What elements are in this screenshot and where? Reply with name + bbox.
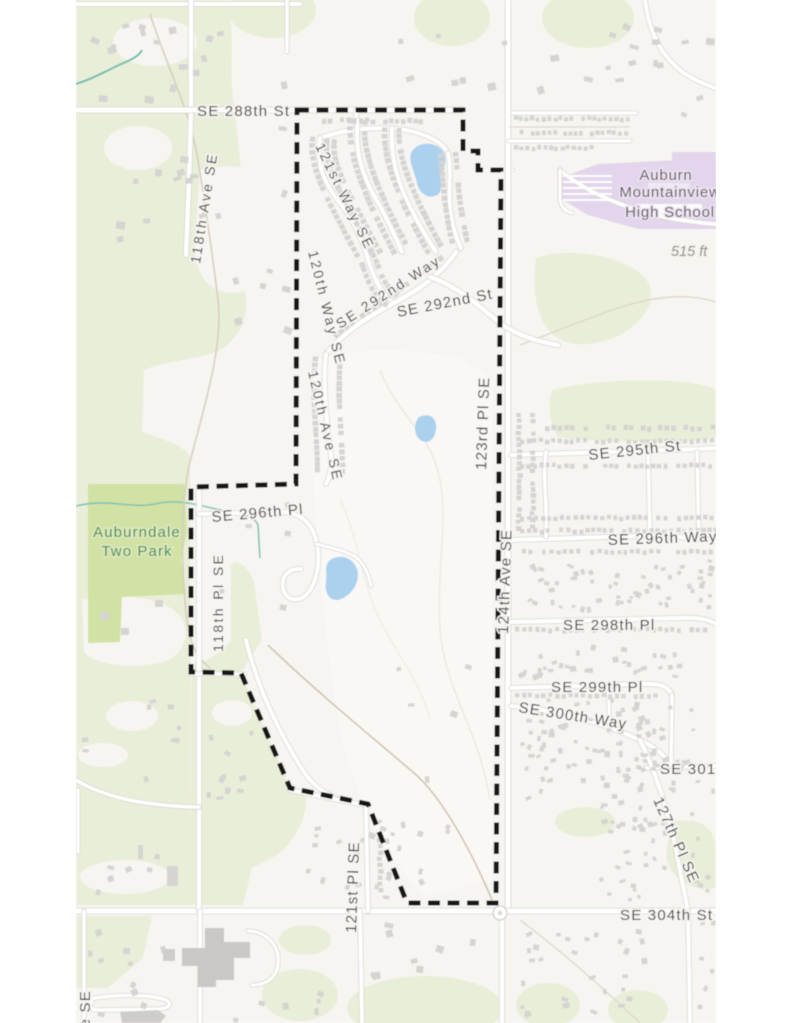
svg-text:Two Park: Two Park xyxy=(101,543,172,560)
svg-text:123rd Pl SE: 123rd Pl SE xyxy=(473,376,493,470)
svg-text:118th Pl SE: 118th Pl SE xyxy=(210,553,226,652)
svg-text:515 ft: 515 ft xyxy=(671,244,708,260)
svg-text:112th Ave SE: 112th Ave SE xyxy=(77,990,94,1023)
svg-text:SE 288th St: SE 288th St xyxy=(197,103,290,120)
svg-text:Auburn: Auburn xyxy=(639,167,692,184)
svg-text:121st Pl SE: 121st Pl SE xyxy=(343,841,363,933)
svg-text:Mountainview: Mountainview xyxy=(619,184,720,201)
svg-text:High School: High School xyxy=(625,204,715,221)
svg-text:SE 299th Pl: SE 299th Pl xyxy=(551,679,643,696)
svg-text:SE 304th St: SE 304th St xyxy=(620,907,713,924)
svg-text:Auburndale: Auburndale xyxy=(93,524,181,541)
svg-text:SE 298th Pl: SE 298th Pl xyxy=(563,617,655,634)
